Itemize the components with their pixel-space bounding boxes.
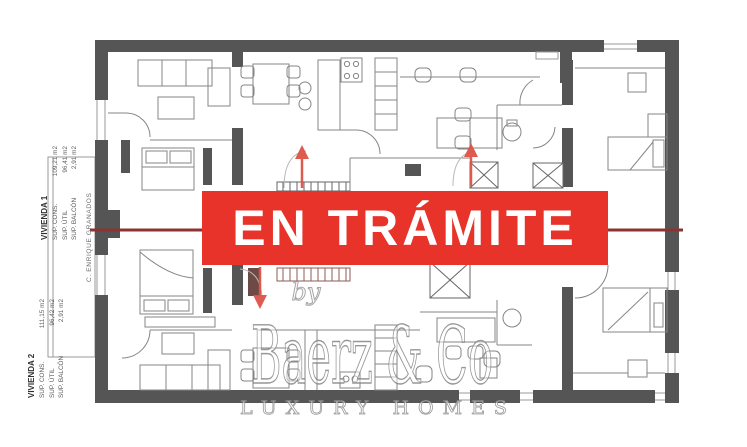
area-row: SUP. CONS. 109,21 m2: [51, 146, 61, 240]
staircase-lower: [277, 268, 350, 281]
area-value: 109,21 m2: [51, 146, 61, 176]
area-row: SUP. CONS. 111,15 m2: [38, 299, 48, 398]
bedroom-right: [573, 265, 667, 377]
bathroom: [497, 105, 562, 150]
area-value: 96,41 m2: [61, 146, 71, 173]
desk: [437, 318, 497, 378]
dining-table: [241, 64, 300, 104]
area-label: SUP. ÚTIL: [48, 368, 58, 398]
area-value: 96,42 m2: [48, 299, 58, 326]
desk: [437, 108, 502, 149]
door-arc: [126, 113, 150, 137]
vivienda-1-label: VIVIENDA 1 SUP. CONS. 109,21 m2 SUP. ÚTI…: [40, 146, 80, 240]
coffee-table: [162, 333, 194, 354]
banner-text: EN TRÁMITE: [232, 199, 578, 257]
area-row: SUP. ÚTIL 96,41 m2: [61, 146, 71, 240]
area-label: SUP. CONS.: [38, 362, 48, 398]
dining-table: [241, 348, 300, 388]
door-arc: [122, 330, 150, 358]
kitchen: [258, 325, 500, 390]
en-tramite-banner: EN TRÁMITE: [202, 191, 608, 265]
area-row: SUP. BALCÓN 2,91 m2: [70, 146, 80, 240]
upper-apartment: [108, 58, 667, 190]
coffee-table: [158, 97, 194, 119]
street-label: C. ENRIQUE GRANADOS: [86, 193, 93, 282]
bed: [142, 148, 194, 190]
bedroom-right: [520, 68, 667, 170]
floor-plan-page: VIVIENDA 1 SUP. CONS. 109,21 m2 SUP. ÚTI…: [0, 0, 747, 447]
area-value: 2,91 m2: [70, 146, 80, 169]
area-label: SUP. BALCÓN: [57, 356, 67, 398]
staircase-upper: [277, 182, 350, 191]
vivienda-2-label: VIVIENDA 2 SUP. CONS. 111,15 m2 SUP. ÚTI…: [27, 299, 67, 398]
area-label: SUP. CONS.: [51, 204, 61, 240]
kitchen: [299, 58, 397, 154]
sofa: [138, 60, 230, 106]
sofa: [140, 350, 230, 390]
area-row: SUP. ÚTIL 96,42 m2: [48, 299, 58, 398]
area-row: SUP. BALCÓN 2,91 m2: [57, 299, 67, 398]
vivienda-1-title: VIVIENDA 1: [40, 146, 49, 240]
area-value: 2,91 m2: [57, 299, 67, 322]
area-label: SUP. BALCÓN: [70, 198, 80, 240]
vivienda-2-title: VIVIENDA 2: [27, 299, 36, 398]
area-value: 111,15 m2: [38, 299, 48, 328]
area-label: SUP. ÚTIL: [61, 210, 71, 240]
bathroom: [497, 300, 532, 345]
